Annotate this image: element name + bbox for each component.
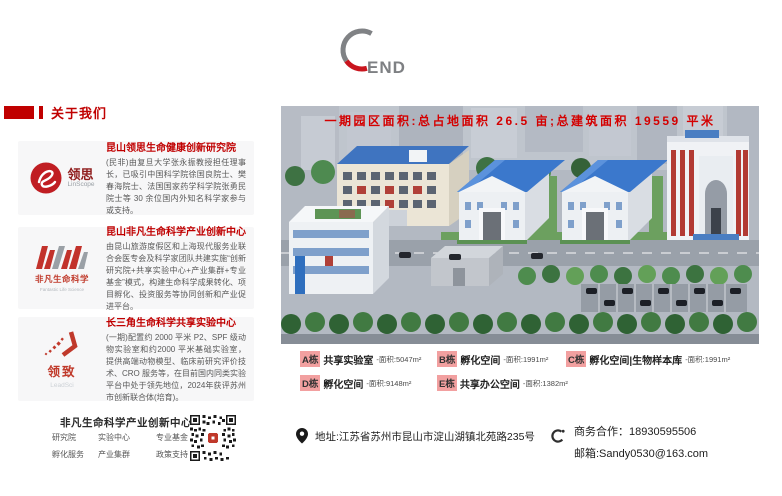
building-a	[667, 130, 749, 240]
section-title: 昆山非凡生命科学产业创新中心	[106, 223, 246, 238]
linscope-circle-icon	[29, 161, 63, 195]
building-area: -面积:5047m²	[376, 354, 421, 365]
building-name: 共享办公空间	[460, 376, 520, 391]
slide: END 关于我们 领思 LinScope 昆山领思生命健康创新研究院 (民非)由…	[0, 0, 782, 496]
feature-item: 研究院	[52, 432, 98, 443]
building-name: 孵化空间	[460, 352, 500, 367]
building-area: -面积:1991m²	[503, 354, 548, 365]
qr-code	[190, 415, 236, 461]
address-row: 地址:江苏省苏州市昆山市淀山湖镇北苑路235号	[296, 428, 535, 444]
building-tag: B栋	[437, 351, 457, 367]
building-tag: D栋	[300, 375, 320, 391]
about-header: 关于我们	[51, 103, 107, 122]
fantastic-logo-zh: 非凡生命科学	[35, 273, 89, 285]
building-label-c: C栋 孵化空间|生物样本库 -面积:1991m²	[566, 351, 730, 367]
red-block-decoration	[4, 106, 34, 119]
section-body: 由昆山旅游度假区和上海现代服务业联合会医专会及科学家团队共建实施“创新研究院+共…	[106, 241, 246, 313]
building-name: 孵化空间|生物样本库	[589, 352, 682, 367]
red-bar-decoration	[39, 106, 43, 119]
linscope-logo-zh: 领思	[67, 168, 94, 182]
leadsci-logo-en: LeadSci	[50, 382, 74, 389]
linscope-logo: 领思 LinScope	[18, 161, 106, 195]
section-title: 长三角生命科学共享实验中心	[106, 314, 246, 329]
building-tag: A栋	[300, 351, 320, 367]
building-tag: C栋	[566, 351, 586, 367]
building-label-e: E栋 共享办公空间 -面积:1382m²	[437, 375, 568, 391]
footer-org-title: 非凡生命科学产业创新中心	[60, 415, 192, 430]
about-section-linscope: 领思 LinScope 昆山领思生命健康创新研究院 (民非)由复旦大学张永振教授…	[18, 141, 254, 215]
building-tag: E栋	[437, 375, 457, 391]
footer-features: 研究院 实验中心 专业基金 孵化服务 产业集群 政策支持	[52, 432, 206, 460]
building-label-d: D栋 孵化空间 -面积:9148m²	[300, 375, 411, 391]
fantastic-logo-en: Fantastic Life Science	[40, 287, 84, 292]
business-contact: 商务合作：18930595506 邮箱:Sandy0530@163.com	[550, 423, 708, 461]
business-email: 邮箱:Sandy0530@163.com	[574, 445, 708, 461]
phone-icon	[550, 428, 566, 444]
fantastic-logo: 非凡生命科学 Fantastic Life Science	[18, 244, 106, 292]
campus-banner: 一期园区面积:总占地面积 26.5 亩;总建筑面积 19559 平米	[281, 112, 759, 129]
section-title: 昆山领思生命健康创新研究院	[106, 139, 246, 154]
feature-item: 产业集群	[98, 449, 156, 460]
location-pin-icon	[296, 428, 308, 444]
about-section-fantastic: 非凡生命科学 Fantastic Life Science 昆山非凡生命科学产业…	[18, 227, 254, 309]
address-text: 地址:江苏省苏州市昆山市淀山湖镇北苑路235号	[315, 429, 535, 444]
building-name: 孵化空间	[323, 376, 363, 391]
leadsci-logo-zh: 领致	[47, 361, 76, 380]
building-area: -面积:1991m²	[685, 354, 730, 365]
about-section-leadsci: 领致 LeadSci 长三角生命科学共享实验中心 (一期)配置约 2000 平米…	[18, 317, 254, 401]
end-label: END	[367, 58, 406, 78]
leadsci-logo: 领致 LeadSci	[18, 330, 106, 389]
campus-rendering	[281, 106, 759, 344]
building-e	[289, 206, 389, 294]
utility-building	[431, 246, 503, 286]
feature-item: 实验中心	[98, 432, 156, 443]
section-body: (民非)由复旦大学张永振教授担任理事长，已吸引中国科学院徐国良院士、樊春海院士、…	[106, 157, 246, 217]
campus-aerial-image: 一期园区面积:总占地面积 26.5 亩;总建筑面积 19559 平米	[281, 106, 759, 344]
building-label-a: A栋 共享实验室 -面积:5047m²	[300, 351, 421, 367]
section-body: (一期)配置约 2000 平米 P2、SPF 级动物实验室和约2000 平米基础…	[106, 332, 246, 404]
building-label-b: B栋 孵化空间 -面积:1991m²	[437, 351, 548, 367]
building-area: -面积:1382m²	[523, 378, 568, 389]
building-area: -面积:9148m²	[366, 378, 411, 389]
business-phone: 商务合作：18930595506	[574, 423, 708, 439]
feature-item: 孵化服务	[52, 449, 98, 460]
end-logo: END	[338, 26, 458, 82]
linscope-logo-en: LinScope	[67, 181, 94, 188]
fantastic-w-icon	[34, 244, 90, 270]
leadsci-arrow-icon	[41, 330, 83, 358]
building-name: 共享实验室	[323, 352, 373, 367]
parking-lot	[581, 284, 747, 312]
